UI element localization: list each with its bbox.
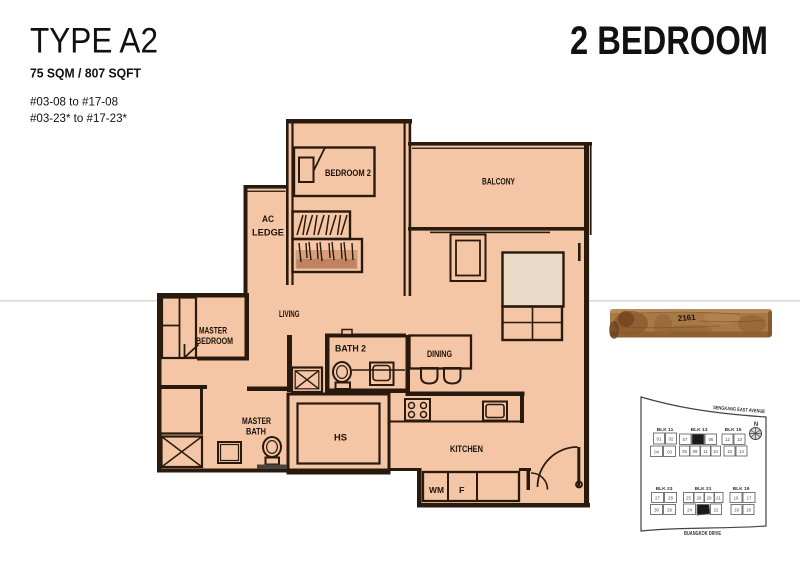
svg-text:20: 20 [707, 496, 712, 501]
svg-text:21: 21 [716, 496, 721, 501]
svg-text:09: 09 [693, 449, 698, 454]
svg-text:13: 13 [737, 437, 742, 442]
svg-text:16: 16 [734, 496, 739, 501]
svg-text:24: 24 [687, 508, 692, 513]
svg-text:BUANGKOK DRIVE: BUANGKOK DRIVE [684, 531, 722, 537]
svg-text:12: 12 [725, 437, 730, 442]
svg-text:TYPE A2: TYPE A2 [30, 22, 158, 61]
svg-text:BLK 15: BLK 15 [725, 427, 742, 433]
svg-text:BALCONY: BALCONY [482, 177, 515, 188]
svg-text:BLK 21: BLK 21 [695, 486, 712, 492]
svg-text:19: 19 [734, 508, 739, 513]
svg-text:HS: HS [334, 433, 347, 444]
svg-text:28: 28 [668, 496, 673, 501]
svg-text:DINING: DINING [427, 349, 452, 360]
svg-text:29: 29 [667, 508, 672, 513]
svg-text:BLK 19: BLK 19 [733, 486, 750, 492]
svg-text:11: 11 [703, 449, 708, 454]
svg-text:10: 10 [713, 449, 718, 454]
svg-text:BATH 2: BATH 2 [335, 344, 366, 355]
svg-text:BEDROOM 2: BEDROOM 2 [325, 168, 371, 179]
svg-text:BEDROOM: BEDROOM [196, 336, 233, 347]
svg-text:05: 05 [682, 449, 687, 454]
svg-text:BLK 23: BLK 23 [656, 486, 673, 492]
svg-text:25: 25 [686, 496, 691, 501]
svg-text:#03-08 to #17-08: #03-08 to #17-08 [30, 95, 118, 109]
svg-text:18: 18 [746, 508, 751, 513]
svg-text:01: 01 [657, 437, 662, 442]
svg-text:04: 04 [654, 450, 659, 455]
svg-text:03: 03 [667, 450, 672, 455]
svg-text:LEDGE: LEDGE [252, 228, 284, 239]
svg-text:MASTER: MASTER [242, 416, 271, 427]
svg-text:KITCHEN: KITCHEN [450, 444, 483, 455]
svg-text:BLK 13: BLK 13 [691, 427, 708, 433]
svg-text:27: 27 [655, 496, 660, 501]
svg-text:F: F [459, 485, 465, 495]
svg-text:07: 07 [683, 437, 688, 442]
svg-text:2 BEDROOM: 2 BEDROOM [570, 19, 768, 63]
svg-text:MASTER: MASTER [199, 326, 227, 337]
svg-text:17: 17 [747, 496, 752, 501]
svg-text:14: 14 [739, 449, 744, 454]
svg-text:AC: AC [262, 214, 274, 225]
svg-text:2161: 2161 [678, 313, 697, 323]
svg-text:15: 15 [727, 449, 732, 454]
svg-text:30: 30 [654, 508, 659, 513]
svg-text:26: 26 [697, 496, 702, 501]
svg-text:06: 06 [709, 437, 714, 442]
svg-text:02: 02 [669, 437, 674, 442]
svg-text:75 SQM / 807 SQFT: 75 SQM / 807 SQFT [30, 66, 141, 81]
svg-text:#03-23* to #17-23*: #03-23* to #17-23* [30, 111, 127, 125]
svg-text:WM: WM [429, 485, 444, 495]
svg-text:22: 22 [714, 508, 719, 513]
svg-text:BLK 11: BLK 11 [657, 427, 674, 433]
svg-text:LIVING: LIVING [279, 309, 300, 320]
svg-text:BATH: BATH [246, 427, 266, 438]
